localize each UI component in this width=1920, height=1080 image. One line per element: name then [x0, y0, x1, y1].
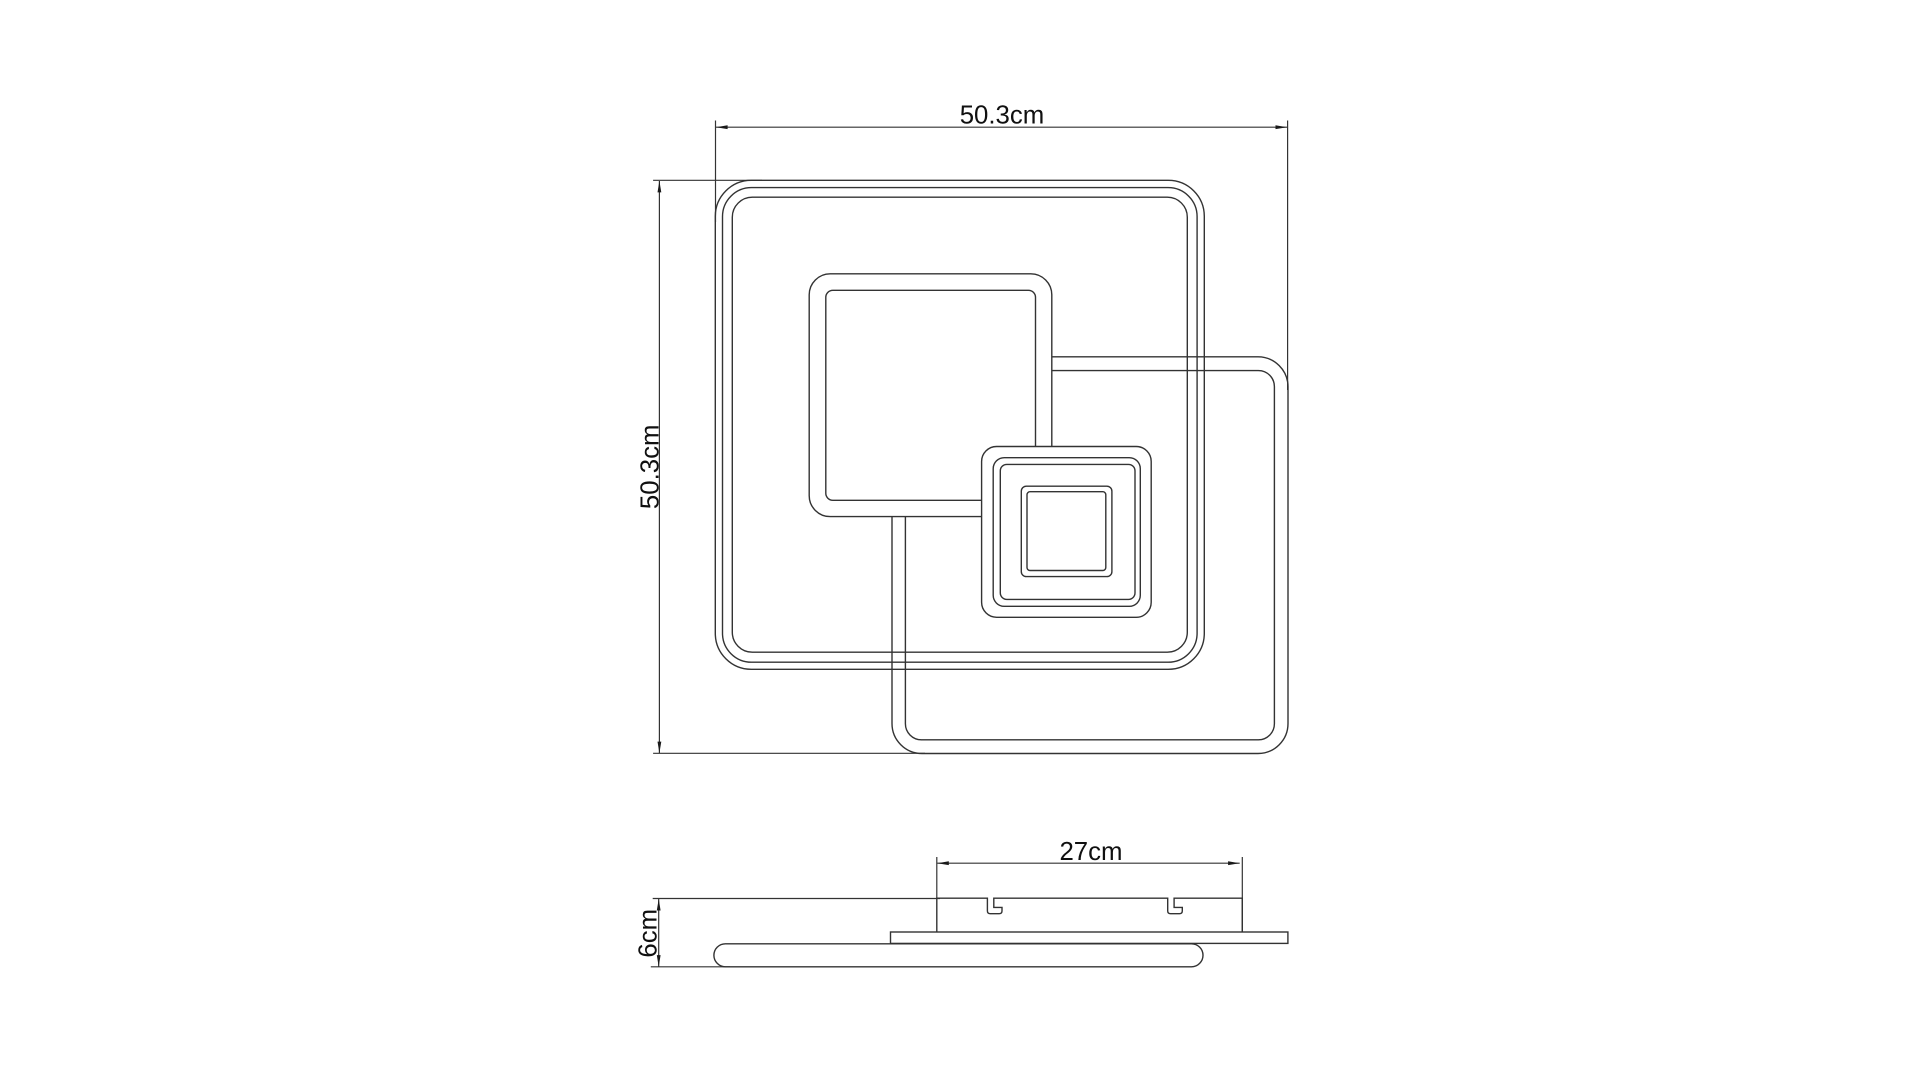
svg-text:50.3cm: 50.3cm [960, 102, 1045, 130]
svg-text:50.3cm: 50.3cm [637, 424, 665, 509]
svg-text:27cm: 27cm [1059, 838, 1122, 866]
svg-text:6cm: 6cm [635, 909, 663, 958]
